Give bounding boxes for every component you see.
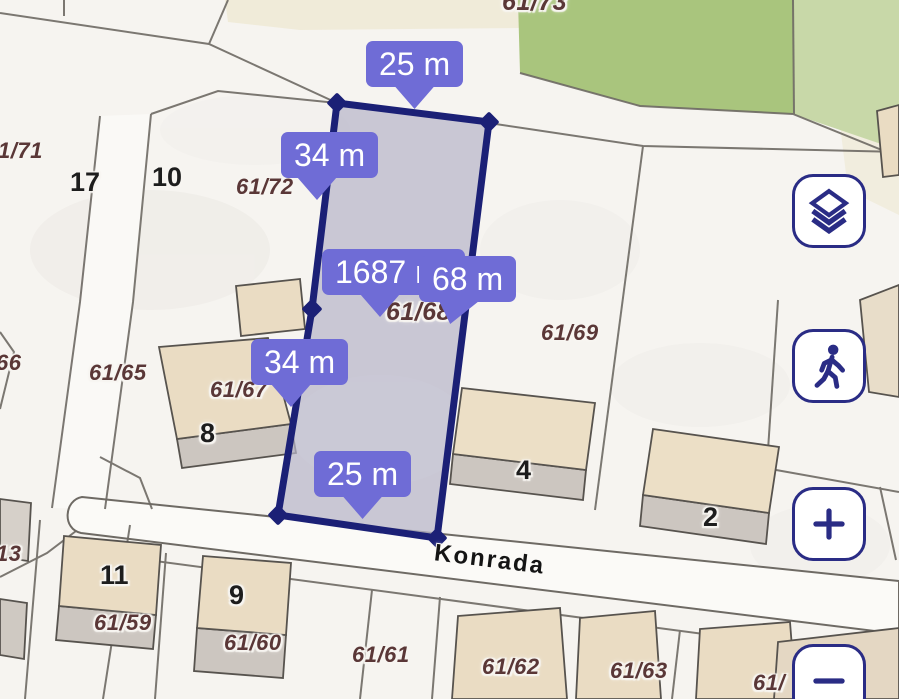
parcel-label-61-65: 61/65 — [89, 360, 147, 386]
parcel-label-61-63: 61/63 — [610, 658, 668, 684]
measurement-text: 25 m — [327, 456, 398, 492]
measurement-label-left-lower: 34 m — [251, 339, 348, 385]
parcel-label-61-cut: 61/ — [753, 670, 785, 696]
measurement-text: 25 m — [379, 46, 450, 82]
house-number-4: 4 — [516, 455, 531, 486]
layers-stack-icon — [806, 188, 852, 234]
house-number-2: 2 — [703, 502, 718, 533]
parcel-label-61-72: 61/72 — [236, 174, 294, 200]
parcel-label-61-61: 61/61 — [352, 642, 410, 668]
zoom-in-button[interactable] — [792, 487, 866, 561]
plus-icon — [806, 501, 852, 547]
house-number-17: 17 — [70, 167, 100, 198]
walking-person-icon — [806, 343, 852, 389]
house-number-10: 10 — [152, 162, 182, 193]
parcel-label-61-60: 61/60 — [224, 630, 282, 656]
minus-icon — [806, 658, 852, 699]
measurement-label-left-upper: 34 m — [281, 132, 378, 178]
parcel-label-61-66: 66 — [0, 350, 21, 376]
measurement-label-top-width: 25 m — [366, 41, 463, 87]
walk-mode-button[interactable] — [792, 329, 866, 403]
layers-button[interactable] — [792, 174, 866, 248]
house-number-8: 8 — [200, 418, 215, 449]
basemap — [0, 0, 899, 699]
parcel-label-61-71: 1/71 — [0, 138, 43, 164]
parcel-label-61-62: 61/62 — [482, 654, 540, 680]
measurement-text: 34 m — [264, 344, 335, 380]
measurement-text: 68 m — [432, 261, 503, 297]
zoom-out-button[interactable] — [792, 644, 866, 699]
measurement-text: 34 m — [294, 137, 365, 173]
house-number-11: 11 — [100, 560, 129, 591]
parcel-label-61-69: 61/69 — [541, 320, 599, 346]
cream-area — [225, 0, 520, 30]
measurement-label-bottom-width: 25 m — [314, 451, 411, 497]
parcel-label-13: 13 — [0, 541, 21, 567]
map-view[interactable]: 61/73 1/71 61/72 61/68 61/69 66 61/65 61… — [0, 0, 899, 699]
parcel-label-61-59: 61/59 — [94, 610, 152, 636]
parcel-label-61-73: 61/73 — [502, 0, 567, 17]
house-number-9: 9 — [229, 580, 244, 611]
measurement-label-right-side: 68 m — [419, 256, 516, 302]
